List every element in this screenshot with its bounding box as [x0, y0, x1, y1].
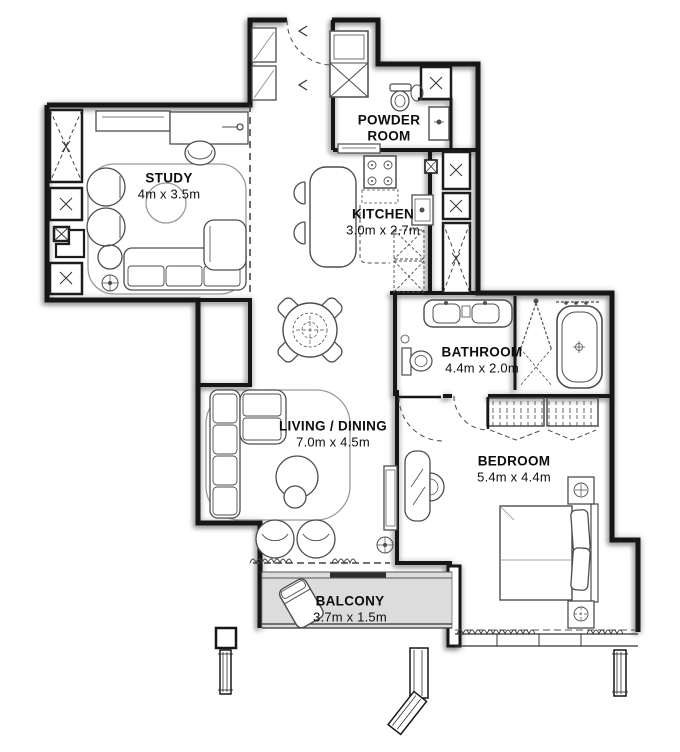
room-name: KITCHEN: [346, 207, 420, 223]
pillow: [571, 509, 591, 552]
room-dims: 4.4m x 2.0m: [442, 360, 523, 375]
room-dims: 3.0m x 2.7m: [346, 222, 420, 237]
room-label-powder-room: POWDER ROOM: [351, 112, 427, 143]
floor-plan-drawing: [0, 0, 680, 752]
entry-door-arc: [287, 20, 332, 65]
kitchen-stool-2: [294, 222, 305, 244]
kitchen-faucet: [420, 208, 425, 213]
bedroom-dresser: [405, 451, 430, 521]
shower-spray: [521, 303, 551, 348]
room-label-living-dining: LIVING / DINING 7.0m x 4.5m: [279, 419, 387, 450]
room-dims: 3.7m x 1.5m: [313, 609, 387, 624]
study-console: [96, 111, 170, 131]
wardrobe-section-2: [547, 398, 598, 426]
wardrobe: [487, 398, 598, 440]
kitchen-hood: [362, 190, 398, 203]
fin-center-angled: [388, 691, 426, 734]
room-label-balcony: BALCONY 3.7m x 1.5m: [313, 594, 387, 625]
study-armchair-1: [87, 168, 125, 206]
shower-head: [534, 299, 539, 304]
room-dims: 7.0m x 4.5m: [279, 434, 387, 449]
bed: [500, 506, 572, 600]
entry-closet-1: [252, 28, 276, 62]
fin-sw: [220, 650, 231, 694]
living-barrel-chair-1: [256, 520, 294, 558]
window-mullions: [497, 634, 581, 646]
entry: [252, 20, 368, 100]
fin-stem-sw: [216, 628, 236, 648]
entry-closet-2: [252, 66, 276, 100]
living-room: [206, 390, 397, 558]
study-small-table: [98, 245, 122, 269]
fin-se: [614, 650, 626, 696]
hall-mass-wall: [198, 300, 250, 385]
doors: [399, 396, 488, 441]
room-name: STUDY: [138, 171, 200, 187]
door-swing-arrows: [299, 26, 307, 90]
study-desk: [170, 112, 248, 144]
room-label-study: STUDY 4m x 3.5m: [138, 171, 200, 202]
shower-floor: [520, 348, 552, 386]
floor-plan: STUDY 4m x 3.5m POWDER ROOM KITCHEN 3.0m…: [0, 0, 680, 752]
bathroom-door-arc: [454, 396, 488, 430]
coffee-table-small: [284, 486, 306, 508]
dresser-stool: [430, 473, 444, 501]
powder-toilet: [391, 91, 409, 111]
room-name: BEDROOM: [477, 454, 551, 470]
room-dims: 5.4m x 4.4m: [477, 469, 551, 484]
bed-headboard: [591, 504, 598, 602]
desk-chair: [185, 141, 215, 165]
room-name: BALCONY: [313, 594, 387, 610]
exterior-fins: [216, 628, 628, 734]
kitchen-stool-1: [294, 182, 305, 204]
bath-toilet: [410, 351, 432, 371]
bedroom-window-band: [455, 634, 638, 646]
bath-sink-2: [472, 304, 499, 323]
fin-center: [410, 648, 428, 698]
powder-toilet-tank: [390, 84, 411, 91]
room-name: BATHROOM: [442, 345, 523, 361]
room-name: LIVING / DINING: [279, 419, 387, 435]
powder-pocket-door: [338, 144, 380, 153]
study-armchair-2: [87, 208, 125, 246]
pillow: [571, 547, 591, 590]
room-label-bathroom: BATHROOM 4.4m x 2.0m: [442, 345, 523, 376]
outer-wall-top-left: [47, 20, 287, 105]
living-barrel-chair-2: [297, 520, 335, 558]
curtain-bedroom-right: [587, 630, 623, 634]
room-label-kitchen: KITCHEN 3.0m x 2.7m: [346, 207, 420, 238]
wardrobe-section-1: [487, 398, 544, 426]
room-dims: 4m x 3.5m: [138, 186, 200, 201]
balcony-slider-panel: [330, 573, 386, 578]
bath-sink-1: [433, 304, 460, 323]
bedroom-door-arc: [399, 397, 443, 441]
dining-set: [276, 296, 345, 365]
kitchen-appliances: [394, 230, 424, 292]
room-label-bedroom: BEDROOM 5.4m x 4.4m: [477, 454, 551, 485]
wardrobe-door-swing: [490, 430, 596, 440]
room-name: POWDER ROOM: [351, 112, 427, 143]
